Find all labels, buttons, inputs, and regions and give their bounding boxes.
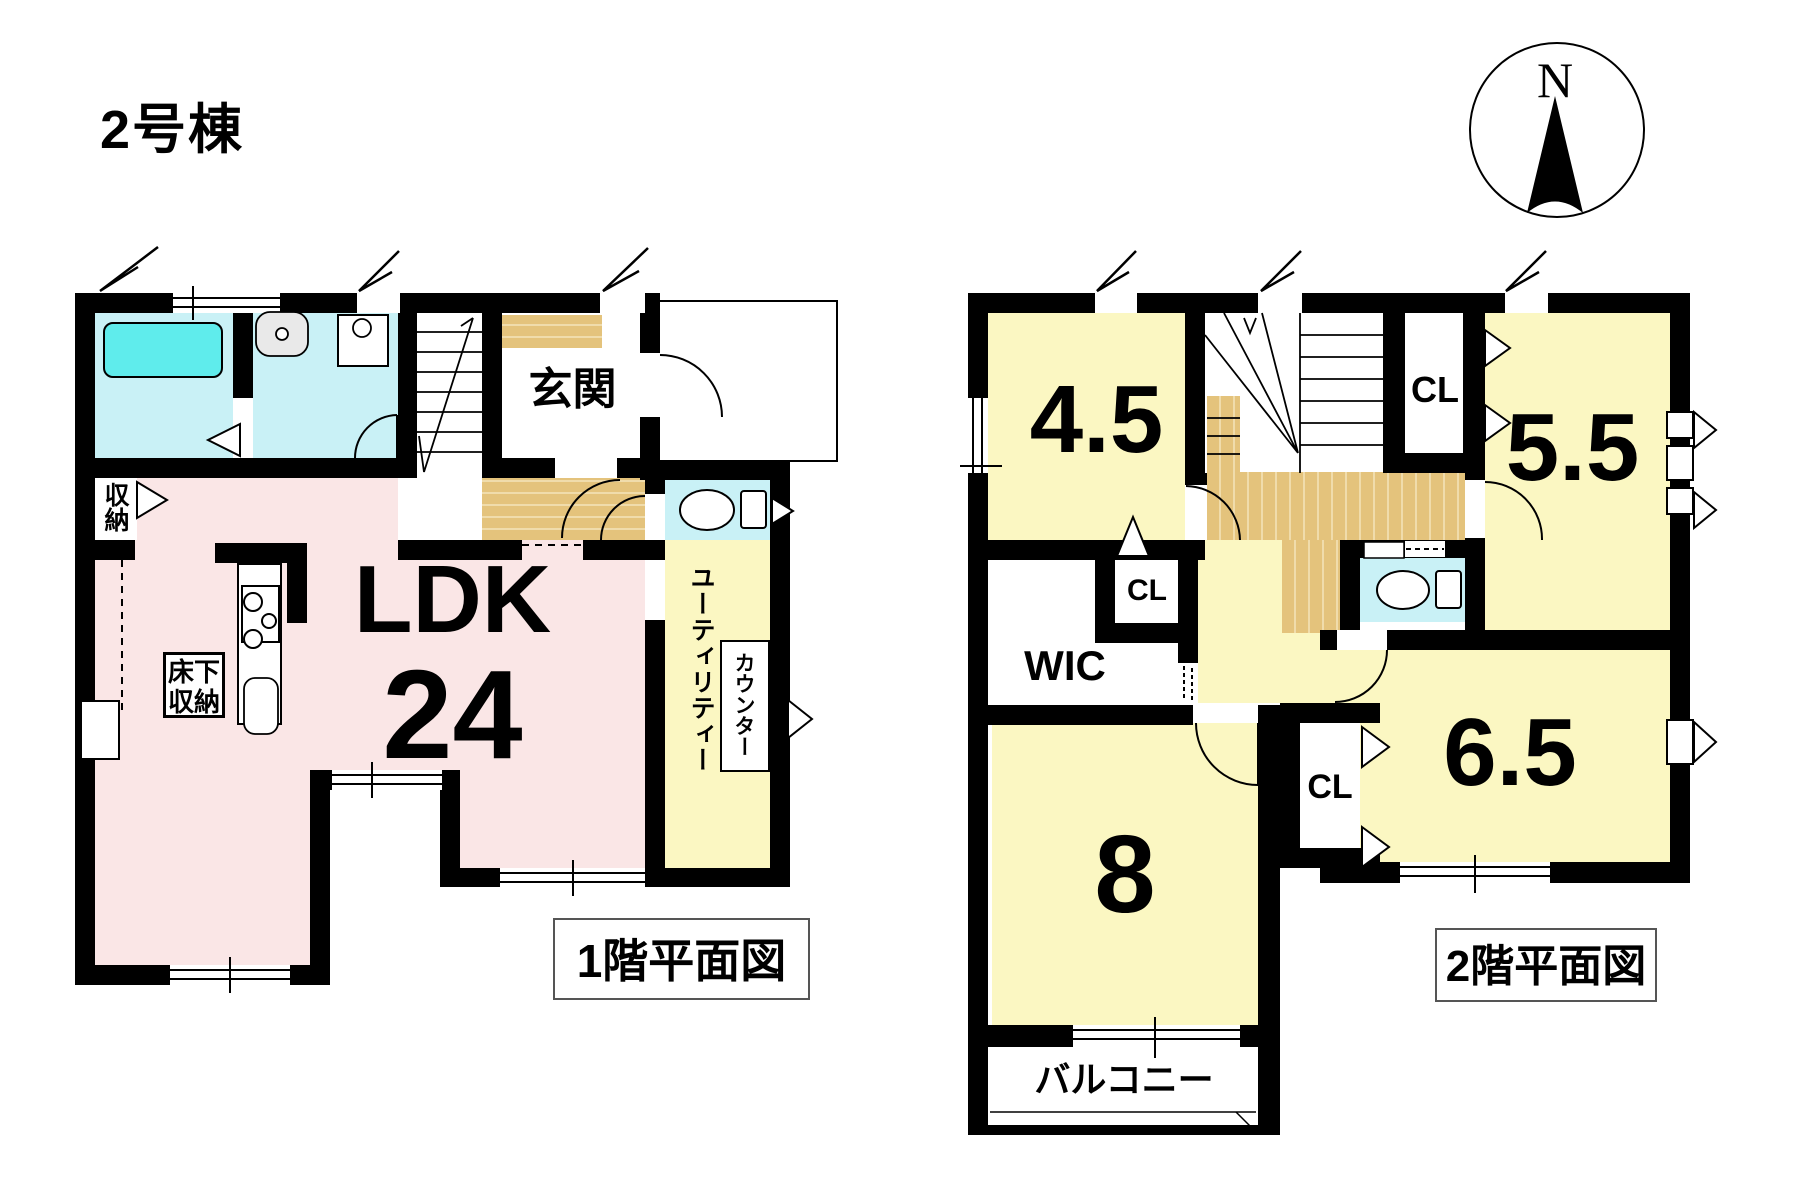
- wall-segment: [1258, 705, 1280, 1025]
- floor1-caption: 1階平面図: [553, 938, 810, 984]
- vent-opening: [600, 293, 645, 313]
- room-label-genkan: 玄関: [505, 368, 640, 412]
- stove-icon: [241, 585, 280, 643]
- floorplan-canvas: 2号棟 N: [0, 0, 1803, 1193]
- hallway-floor-1f: [482, 478, 645, 540]
- toilet-room-2f: [1360, 558, 1465, 622]
- page-title: 2号棟: [100, 103, 244, 157]
- balcony-label: バルコニー: [988, 1062, 1260, 1098]
- door-opening: [1337, 630, 1387, 650]
- wic-label: WIC: [995, 645, 1135, 687]
- floor2-caption: 2階平面図: [1435, 945, 1657, 989]
- floor-storage-label: 床下収納: [167, 658, 221, 718]
- compass-north-label: N: [1528, 55, 1582, 105]
- vent-chevron-icon: [100, 247, 1546, 291]
- washing-machine-icon: [337, 314, 389, 367]
- hall-wood-floor: [1207, 472, 1465, 540]
- wall-segment: [645, 540, 665, 560]
- closet-label: 収納: [102, 482, 127, 532]
- wall-segment: [968, 293, 1690, 313]
- wall-segment: [482, 313, 502, 478]
- wall-segment: [75, 540, 135, 560]
- room-label-6-5: 6.5: [1350, 705, 1670, 801]
- wall-segment: [645, 620, 665, 868]
- hall-wood-floor: [1282, 540, 1340, 633]
- sliding-door-opening: [1405, 541, 1445, 557]
- bathtub-icon: [103, 322, 223, 378]
- door-opening: [1185, 485, 1207, 540]
- counter-label: カウンター: [733, 652, 754, 757]
- stairs-icon: [417, 318, 482, 472]
- wall-cabinet-icon: [80, 700, 120, 760]
- balcony-rail: [988, 1125, 1260, 1135]
- ldk-label: LDK: [335, 552, 570, 648]
- closet-bottom-label: CL: [1290, 770, 1370, 804]
- window: [1400, 862, 1550, 883]
- wall-segment: [1258, 1025, 1280, 1135]
- vent-opening: [1505, 293, 1548, 313]
- ldk-area: [95, 790, 330, 985]
- closet-top-label: CL: [1395, 372, 1475, 408]
- kitchen-wall-stub: [215, 543, 307, 563]
- wall-segment: [310, 790, 330, 985]
- room-label-8: 8: [992, 820, 1258, 930]
- wall-segment: [1095, 623, 1198, 643]
- utility-label: ユーティリティー: [688, 565, 713, 773]
- vent-opening: [1258, 293, 1302, 313]
- closet-mid-label: CL: [1107, 576, 1187, 606]
- door-opening: [555, 458, 617, 478]
- room-label-4-5: 4.5: [988, 372, 1205, 468]
- window: [500, 868, 645, 887]
- wall-segment: [617, 458, 640, 478]
- wall-segment: [583, 540, 645, 560]
- door-opening: [645, 494, 665, 540]
- vent-opening: [1095, 293, 1137, 313]
- wall-segment: [640, 460, 790, 480]
- window: [170, 965, 290, 985]
- ldk-area: [95, 478, 398, 540]
- wall-segment: [502, 458, 555, 478]
- kitchen-wall-stub: [287, 563, 307, 623]
- wall-segment: [75, 293, 95, 985]
- small-window: [1666, 719, 1694, 765]
- entrance-step: [502, 315, 602, 348]
- wall-segment: [75, 458, 398, 478]
- window: [173, 293, 280, 313]
- wall-segment: [398, 313, 417, 478]
- wall-segment: [968, 540, 1205, 560]
- wall-segment: [1670, 293, 1690, 883]
- entrance-porch: [658, 300, 838, 462]
- front-door-opening: [640, 353, 660, 417]
- sliding-door-opening: [1178, 663, 1198, 705]
- wall-segment: [770, 460, 790, 887]
- ldk-size-label: 24: [335, 652, 570, 778]
- window: [968, 398, 988, 473]
- door-opening: [645, 560, 665, 620]
- vent-opening: [357, 293, 400, 313]
- room-label-5-5: 5.5: [1460, 400, 1685, 496]
- door-opening: [233, 398, 253, 458]
- wall-segment: [968, 705, 1193, 725]
- wall-segment: [233, 313, 253, 400]
- window: [1073, 1025, 1240, 1047]
